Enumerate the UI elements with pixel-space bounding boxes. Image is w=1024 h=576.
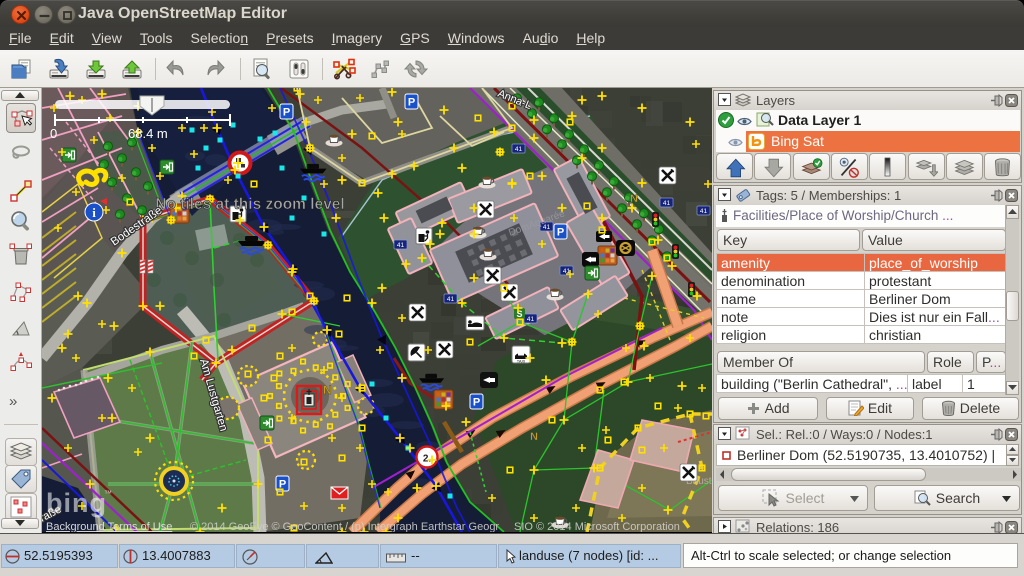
svg-text:41: 41 — [515, 146, 523, 153]
svg-text:i: i — [92, 205, 96, 220]
svg-text:N: N — [530, 431, 538, 443]
svg-text:41: 41 — [527, 316, 535, 323]
svg-text:P: P — [473, 397, 480, 409]
svg-text:No tiles at this zoom level: No tiles at this zoom level — [155, 196, 345, 213]
svg-text:© 2014 GeoEye © GeoContent / (: © 2014 GeoEye © GeoContent / (p) Intergr… — [190, 521, 499, 532]
svg-text:0: 0 — [50, 126, 57, 141]
svg-text:41: 41 — [700, 208, 708, 215]
svg-text:41: 41 — [447, 296, 455, 303]
svg-text:bing: bing — [46, 488, 107, 518]
svg-text:N: N — [323, 383, 332, 397]
svg-text:68.4 m: 68.4 m — [128, 126, 168, 141]
svg-text:P: P — [283, 107, 290, 119]
svg-text:P: P — [557, 227, 564, 239]
svg-text:P: P — [408, 97, 415, 109]
svg-text:41: 41 — [663, 200, 671, 207]
svg-text:TAXI: TAXI — [517, 359, 526, 364]
svg-text:™: ™ — [104, 489, 112, 498]
svg-text:N: N — [630, 193, 638, 205]
svg-text:SIO © 2014 Microsoft Corporati: SIO © 2014 Microsoft Corporation — [514, 521, 680, 532]
svg-text:41: 41 — [397, 242, 405, 249]
svg-text:2.: 2. — [423, 454, 432, 465]
svg-text:Background Terms of Use: Background Terms of Use — [46, 521, 172, 532]
